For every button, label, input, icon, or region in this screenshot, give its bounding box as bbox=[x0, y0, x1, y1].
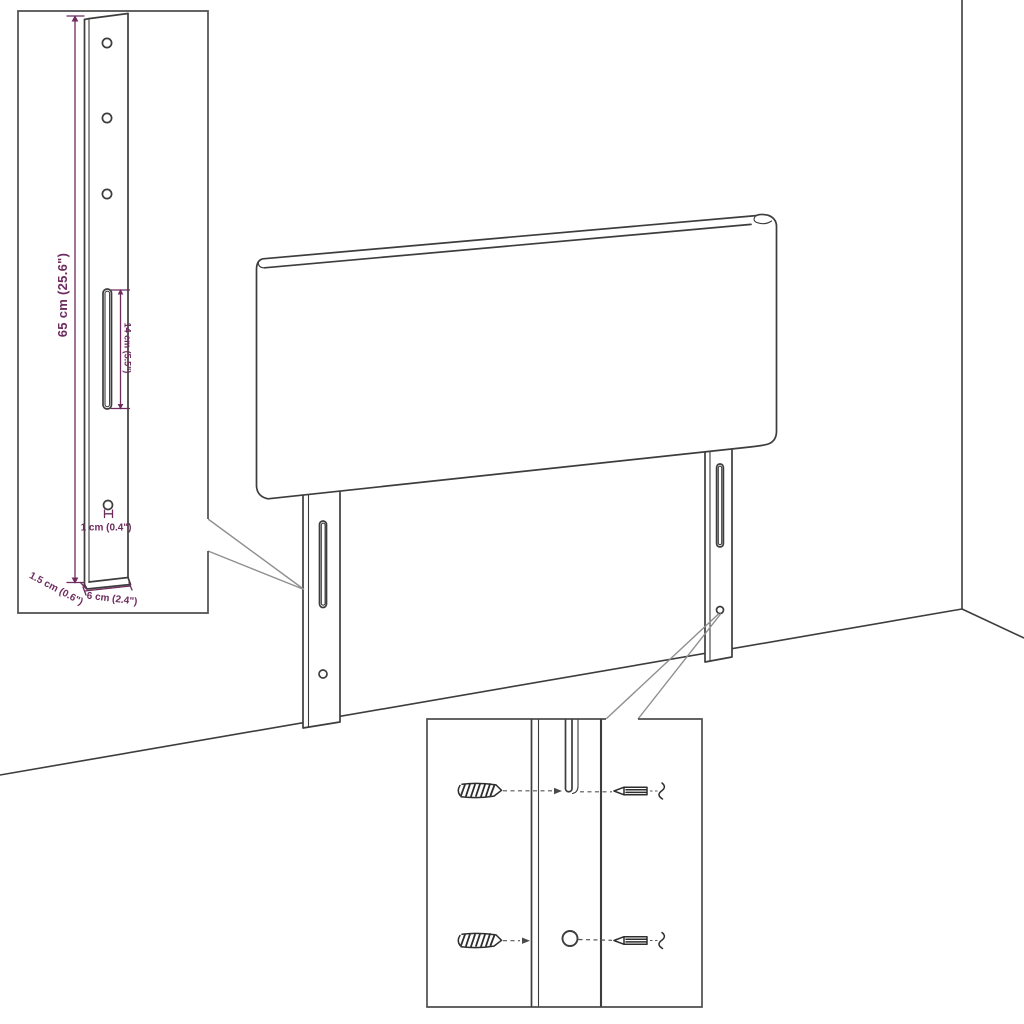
headboard-leg-right bbox=[705, 427, 732, 662]
dim-slot-label: 14 cm (5.5") bbox=[123, 323, 133, 374]
callout-lines-left-inset bbox=[208, 519, 304, 590]
callout-right-outer bbox=[606, 614, 719, 720]
callout-left-lower bbox=[208, 551, 304, 590]
dim-height-label: 65 cm (25.6") bbox=[55, 253, 70, 338]
headboard-panel bbox=[257, 214, 777, 498]
callout-lines-bottom-inset bbox=[606, 614, 721, 720]
diagram-canvas: 65 cm (25.6") 14 cm (5.5") 1 cm (0.4") 1… bbox=[0, 0, 1024, 1024]
dim-hole-label: 1 cm (0.4") bbox=[81, 523, 132, 534]
callout-left-upper bbox=[208, 519, 304, 590]
callout-right-inner bbox=[638, 614, 721, 720]
detail-inset-mounting bbox=[427, 719, 702, 1007]
detail-inset-bracket: 65 cm (25.6") 14 cm (5.5") 1 cm (0.4") 1… bbox=[18, 11, 208, 613]
floor-line-right bbox=[962, 609, 1024, 638]
inset-bottom-fill bbox=[427, 719, 702, 1007]
headboard-leg-left bbox=[303, 466, 340, 728]
panel-outline bbox=[257, 214, 777, 498]
headboard-assembly-diagram: 65 cm (25.6") 14 cm (5.5") 1 cm (0.4") 1… bbox=[0, 0, 1024, 1024]
